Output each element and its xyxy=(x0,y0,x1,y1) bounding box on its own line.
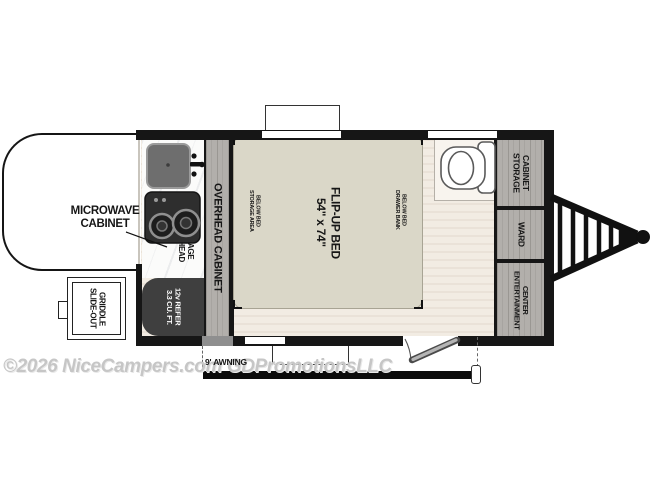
door-opening xyxy=(403,336,458,346)
rear-cabinet-column: STORAGE CABINET WARD ENTERTAINMENT CENTE… xyxy=(494,131,544,345)
cabinet-end-wall xyxy=(202,336,233,346)
slide-out-griddle: SLIDE-OUT GRIDDLE xyxy=(67,277,126,340)
refrigerator-label: 3.3 CU. FT. 12v REFER xyxy=(165,288,182,325)
wardrobe: WARD xyxy=(497,210,544,259)
awning-dash-right xyxy=(477,337,478,367)
left-wall xyxy=(136,264,142,346)
right-wall xyxy=(544,130,554,346)
ward-label: WARD xyxy=(516,222,526,247)
hitch xyxy=(551,197,650,279)
refrigerator: 3.3 CU. FT. 12v REFER xyxy=(142,278,204,336)
griddle-label: SLIDE-OUT GRIDDLE xyxy=(88,288,106,328)
storage-cabinet-label: STORAGE CABINET xyxy=(511,153,530,193)
bed-drawer-bank-label: DRAWER BANK BELOW BED xyxy=(394,190,406,230)
awning-end-cap xyxy=(471,365,481,384)
storage-cabinet: STORAGE CABINET xyxy=(497,140,544,206)
extension-threshold xyxy=(138,140,140,264)
floorplan-canvas: SLIDE-OUT GRIDDLE OVERHEAD STORAGE 3.3 C… xyxy=(0,0,650,487)
microwave-cabinet-label: MICROWAVE CABINET xyxy=(57,205,153,230)
roof-vent xyxy=(265,105,340,133)
hitch-ball-icon xyxy=(637,231,650,244)
toilet-platform xyxy=(434,137,499,201)
entertainment-center: ENTERTAINMENT CENTER xyxy=(497,263,544,337)
front-extension xyxy=(2,133,143,271)
bed-storage-label: STORAGE AREA BELOW BED xyxy=(248,190,260,232)
window xyxy=(245,336,285,345)
window xyxy=(262,130,341,139)
overhead-cabinet: OVERHEAD CABINET xyxy=(204,139,234,337)
entertainment-center-label: ENTERTAINMENT CENTER xyxy=(512,271,529,329)
awning-label: 9' AWNING xyxy=(205,357,247,367)
flip-up-bed: 54" x 74" FLIP-UP BED STORAGE AREA BELOW… xyxy=(233,136,423,309)
overhead-cabinet-label: OVERHEAD CABINET xyxy=(211,183,223,293)
overhead-storage-label: OVERHEAD STORAGE xyxy=(176,219,194,262)
watermark: ©2026 NiceCampers.com GDPromotionsLLC xyxy=(3,356,392,378)
bottom-wall xyxy=(136,336,553,346)
window xyxy=(428,130,497,139)
